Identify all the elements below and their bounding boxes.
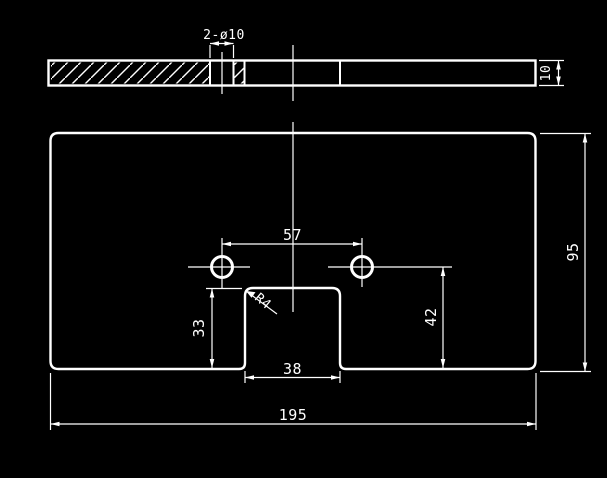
dim-holes: 2-ø10 [203, 28, 245, 58]
dim-hole-to-bottom-label: 42 [422, 307, 440, 326]
dim-notch-height-label: 33 [190, 318, 208, 337]
dim-plate-width: 195 [51, 373, 537, 430]
drawing-svg: 2-ø10 10 57 [0, 0, 607, 478]
front-view: 57 42 33 R4 38 [51, 122, 592, 430]
dim-notch-width-label: 38 [283, 360, 302, 378]
top-section-view: 2-ø10 10 [49, 28, 565, 101]
dim-plate-height-label: 95 [564, 242, 582, 261]
dim-hole-spacing-label: 57 [283, 226, 302, 244]
dim-notch-height: 33 [190, 289, 242, 369]
dim-notch-width: 38 [245, 360, 340, 383]
hatch-area-left [51, 63, 209, 84]
dim-hole-to-bottom: 42 [422, 267, 445, 368]
hatch-area-small [235, 63, 245, 84]
dim-hole-spacing: 57 [222, 226, 362, 246]
dim-plate-width-label: 195 [279, 406, 308, 424]
dim-thickness: 10 [539, 61, 564, 86]
dim-fillet-radius: R4 [246, 291, 277, 314]
dim-holes-label: 2-ø10 [203, 28, 245, 43]
dim-thickness-label: 10 [539, 65, 554, 82]
dim-plate-height: 95 [540, 134, 591, 372]
cad-drawing-canvas[interactable]: 2-ø10 10 57 [0, 0, 607, 478]
